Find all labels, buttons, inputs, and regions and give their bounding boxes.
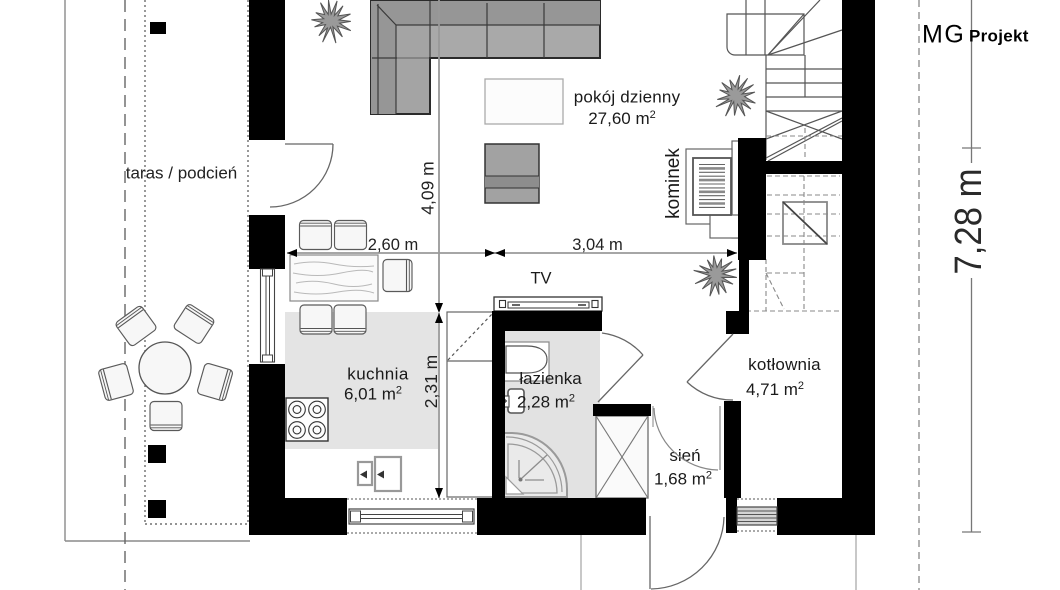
svg-text:MG: MG [922,21,965,49]
svg-text:1,68 m2: 1,68 m2 [654,470,712,489]
svg-text:2,28 m2: 2,28 m2 [517,393,575,412]
svg-text:2,60 m: 2,60 m [368,236,418,254]
svg-text:4,71 m2: 4,71 m2 [746,380,804,399]
svg-text:Projekt: Projekt [969,27,1029,46]
svg-text:TV: TV [530,270,551,288]
svg-text:7,28 m: 7,28 m [948,169,990,275]
svg-text:4,09 m: 4,09 m [418,161,438,215]
svg-text:kominek: kominek [663,148,684,219]
svg-text:27,60 m2: 27,60 m2 [588,109,656,128]
svg-text:kotłownia: kotłownia [748,355,821,374]
svg-text:pokój dzienny: pokój dzienny [574,88,681,107]
svg-text:6,01 m2: 6,01 m2 [344,385,402,404]
svg-text:taras / podcień: taras / podcień [126,164,238,183]
svg-text:łazienka: łazienka [519,369,582,388]
svg-text:sień: sień [669,446,700,465]
svg-text:2,31 m: 2,31 m [421,355,441,409]
svg-text:kuchnia: kuchnia [347,365,409,384]
svg-text:3,04 m: 3,04 m [572,236,622,254]
